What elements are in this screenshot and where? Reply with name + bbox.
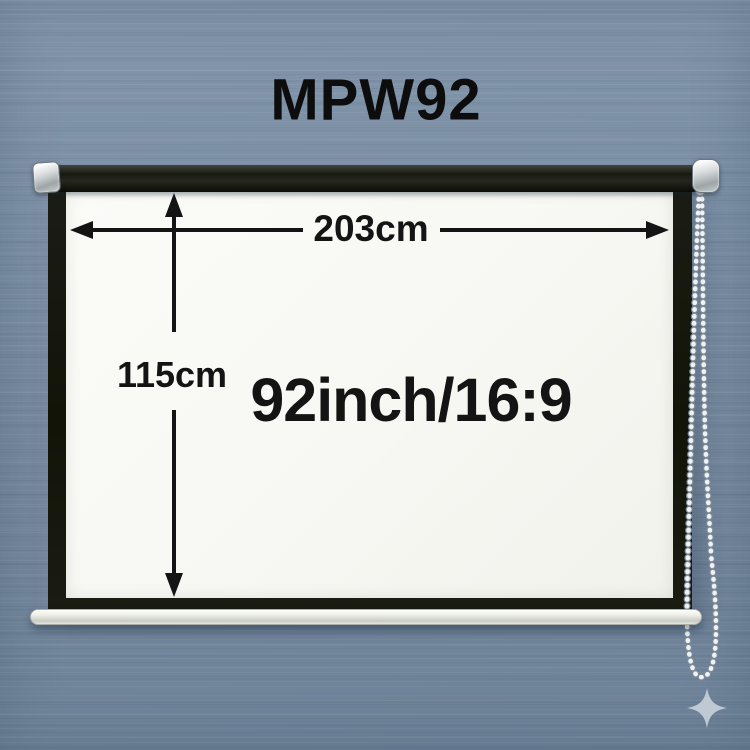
width-dimension-label: 203cm — [313, 208, 428, 250]
roller-endcap-left — [32, 161, 61, 194]
weight-bar — [30, 609, 702, 625]
roller-tube — [52, 165, 700, 192]
screen-size-label: 92inch/16:9 — [250, 365, 571, 435]
product-title: MPW92 — [270, 67, 481, 134]
sparkle-icon — [687, 688, 727, 728]
product-image: MPW92 203cm 115cm 92inch/16:9 — [0, 0, 750, 750]
height-dimension-label: 115cm — [117, 354, 227, 396]
roller-endcap-right — [692, 159, 720, 193]
